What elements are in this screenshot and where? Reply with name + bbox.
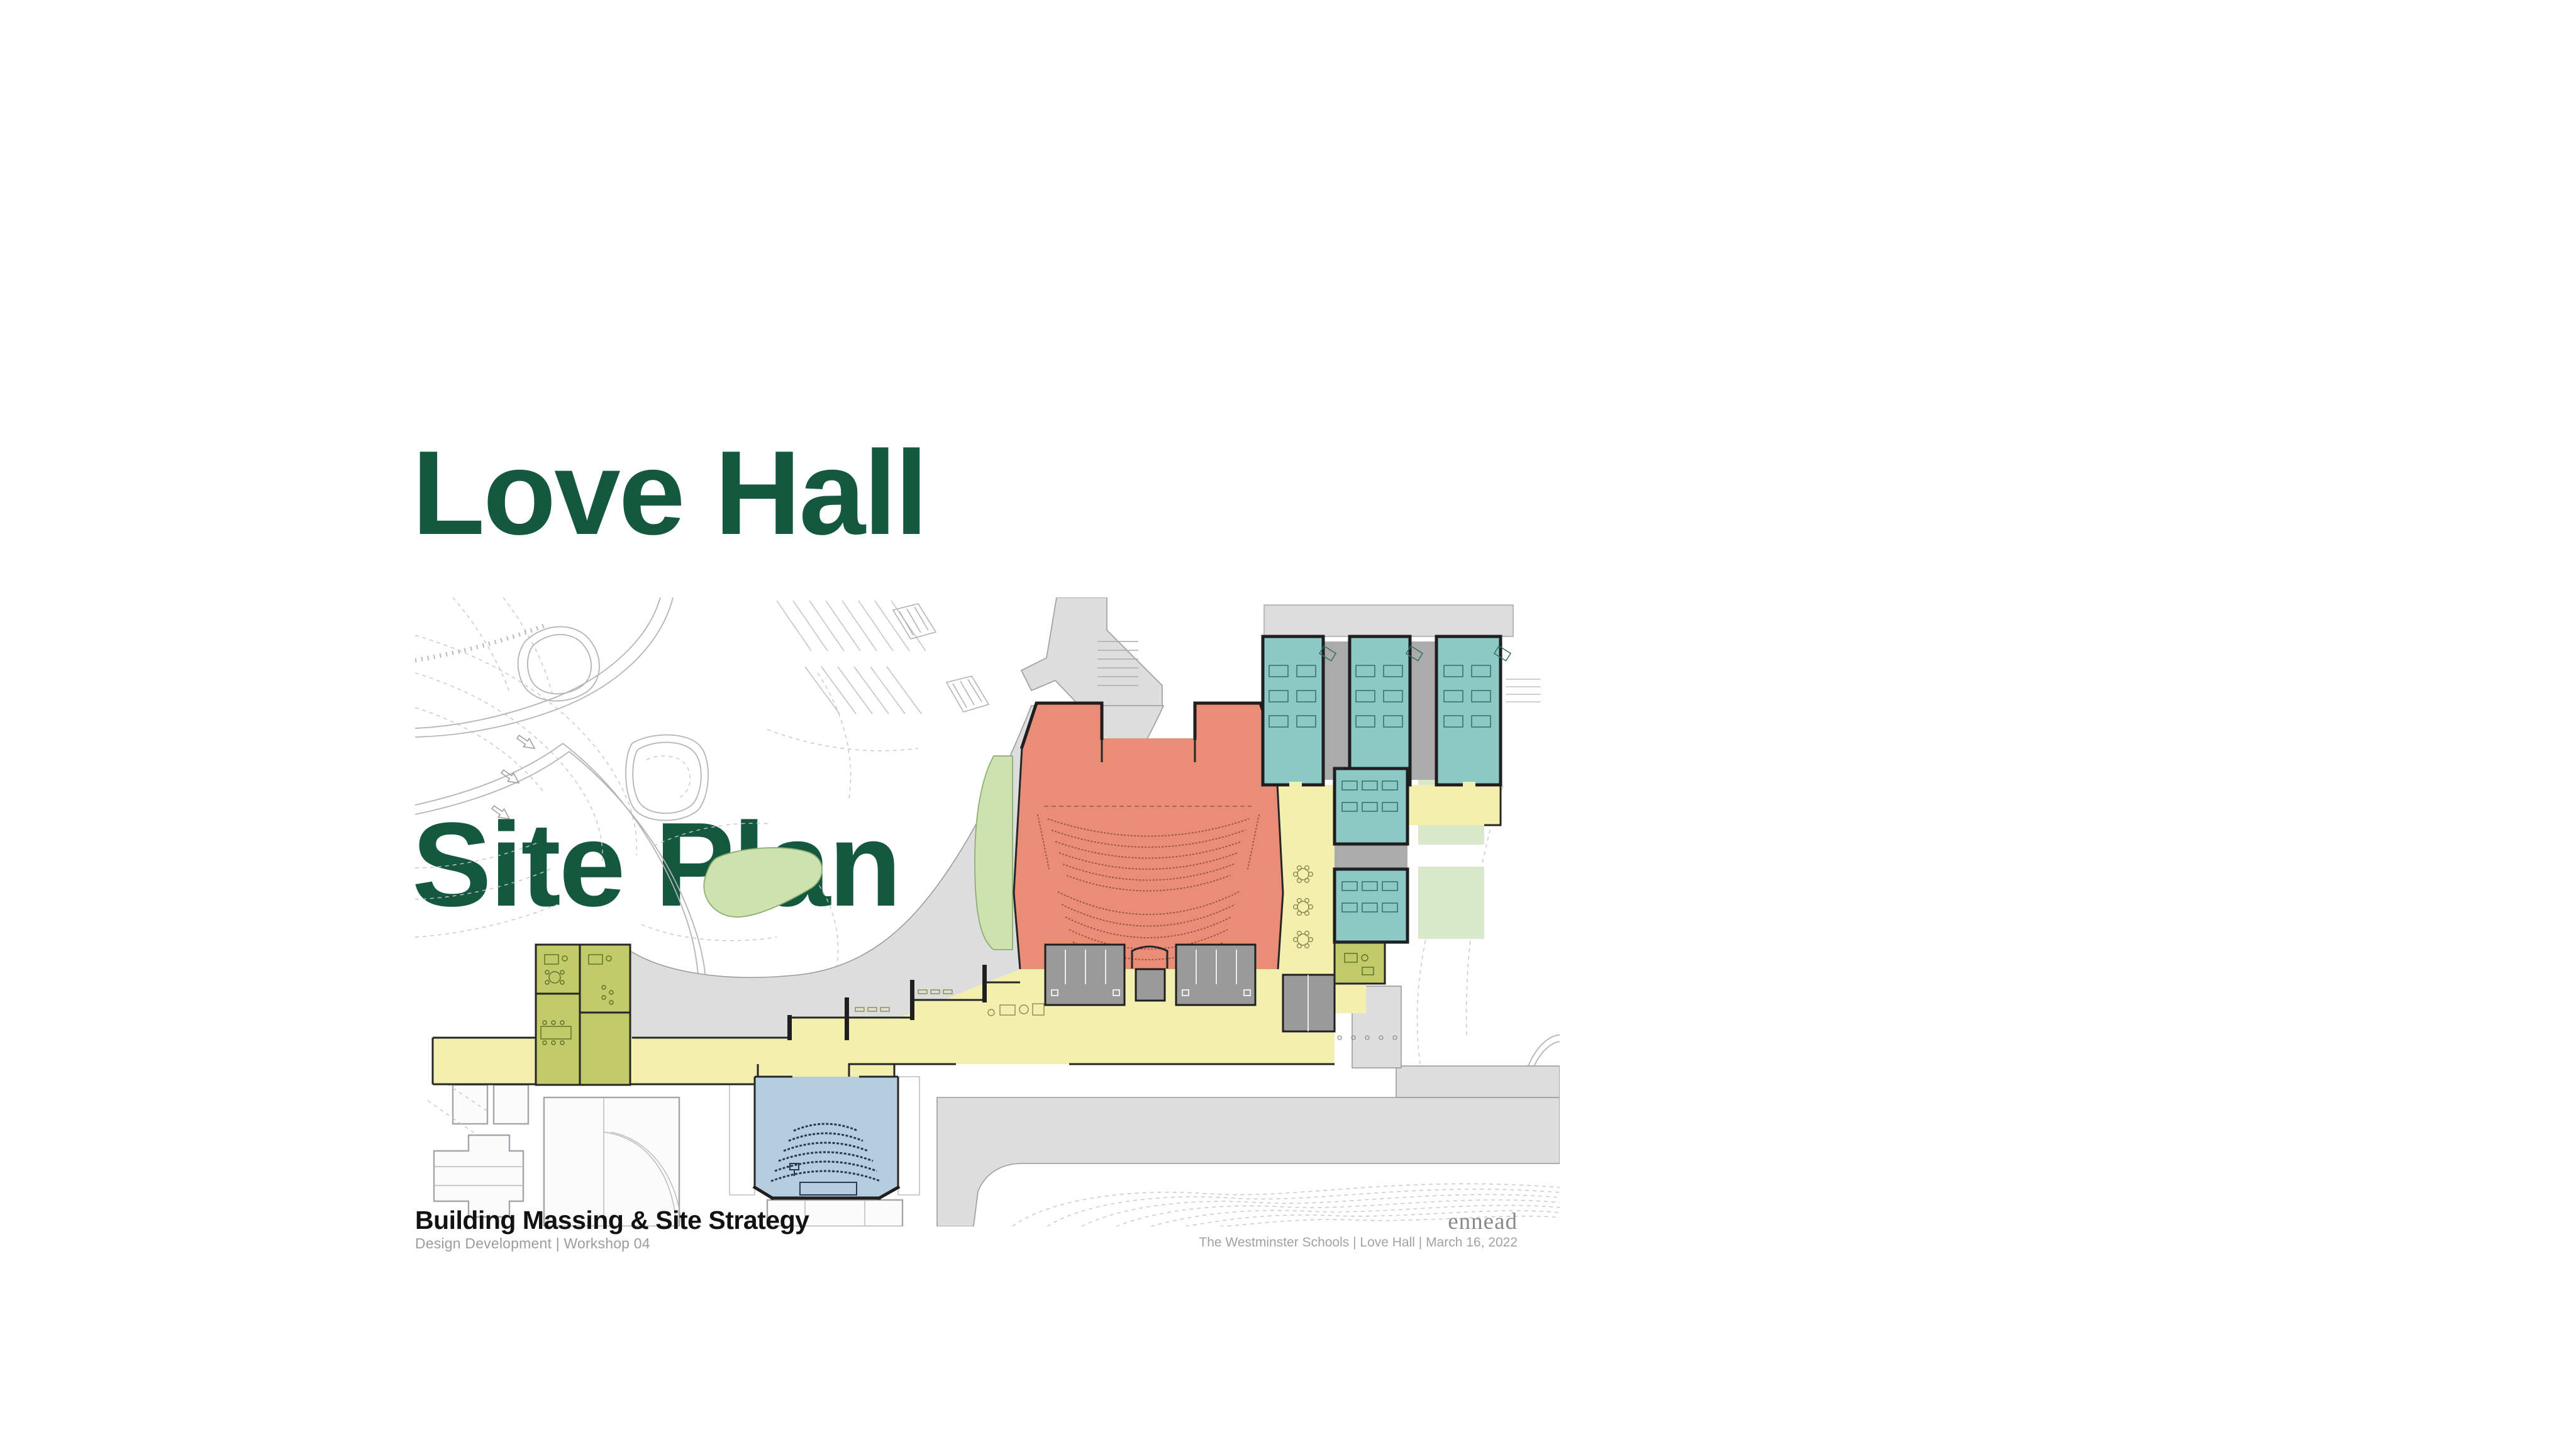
footer-section-subtitle: Design Development | Workshop 04: [415, 1235, 809, 1252]
north-spur-walk: [1021, 597, 1162, 708]
lecture-hall-south: [755, 1077, 898, 1198]
office-floor: [536, 945, 630, 1085]
page-title-line1: Love Hall: [412, 431, 926, 555]
roof-terrace: [1264, 605, 1513, 636]
site-plan-figure: [415, 597, 1560, 1226]
road-direction-arrows: [490, 733, 537, 823]
firm-logo: ennead: [952, 1210, 1518, 1234]
footer-right: ennead The Westminster Schools | Love Ha…: [952, 1210, 1518, 1250]
south-road: [937, 1097, 1560, 1226]
parking-lot: [777, 601, 989, 714]
east-road-stub: [1396, 1066, 1560, 1097]
footer-section-title: Building Massing & Site Strategy: [415, 1206, 809, 1234]
lawn-blob: [704, 848, 822, 917]
office-suite-west: [536, 945, 630, 1085]
classroom-wing-north: [1263, 605, 1541, 788]
lawn-sliver-west-of-auditorium: [975, 756, 1013, 950]
classroom-cluster-east: [1335, 769, 1407, 984]
footer-left: Building Massing & Site Strategy Design …: [415, 1206, 809, 1252]
terrain-contours-northwest: [415, 597, 918, 978]
footer-project-caption: The Westminster Schools | Love Hall | Ma…: [952, 1235, 1518, 1250]
auditorium: [1014, 703, 1283, 969]
site-plan-drawing: [415, 597, 1560, 1226]
slide: Love Hall Site Plan: [0, 0, 2576, 1449]
office-mini-room: [1335, 942, 1385, 984]
